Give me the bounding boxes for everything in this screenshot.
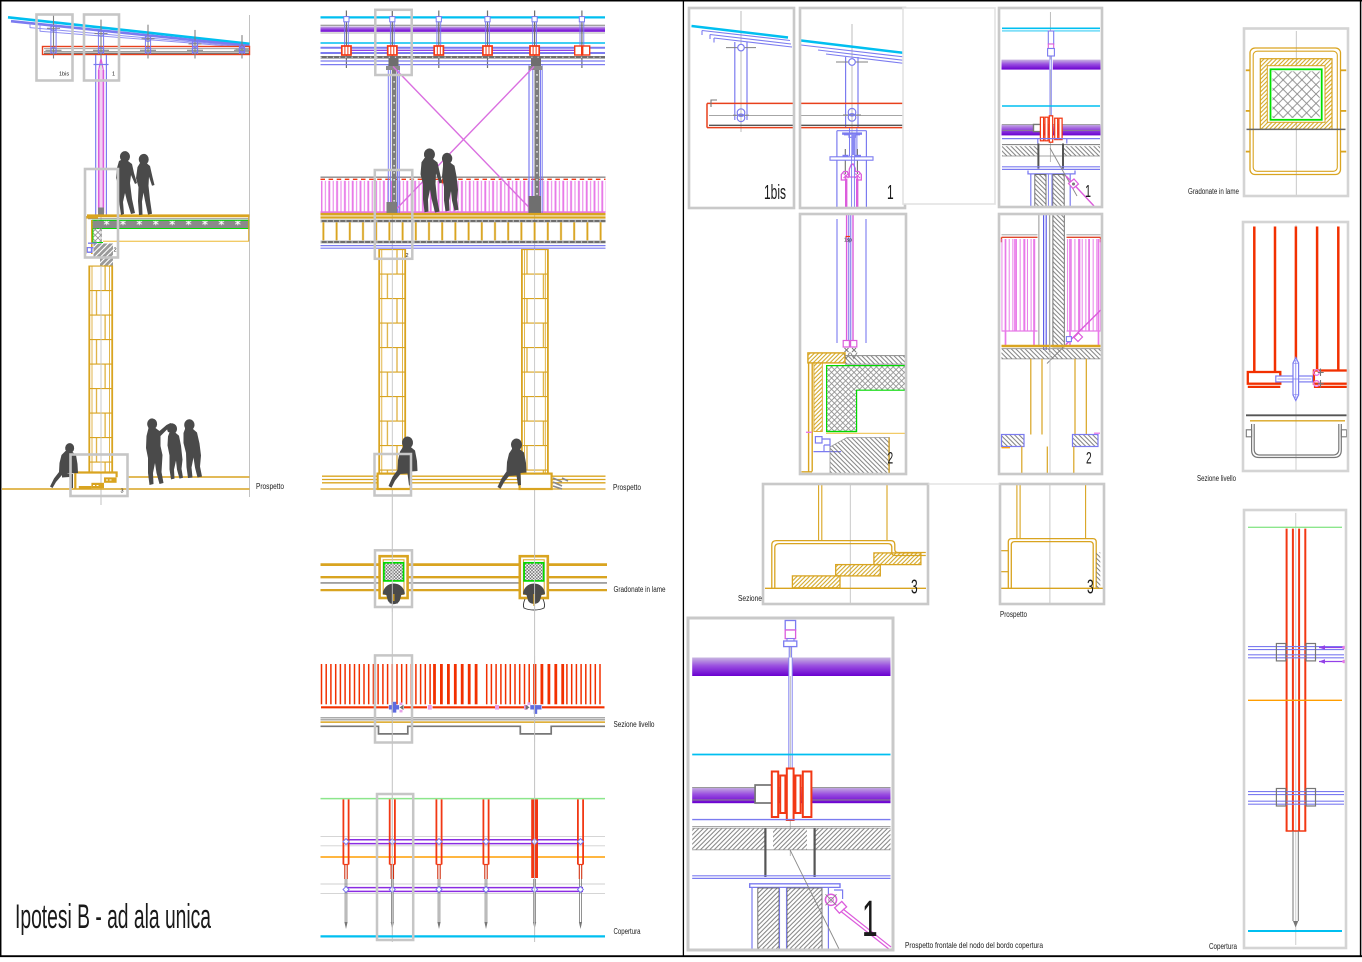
svg-text:Copertura: Copertura [1209,942,1237,951]
svg-text:2: 2 [406,253,409,259]
svg-text:Prospetto: Prospetto [613,482,641,492]
svg-text:Gradonate in lame: Gradonate in lame [1188,187,1239,196]
svg-text:Copertura: Copertura [614,927,641,936]
svg-text:1: 1 [887,182,894,204]
svg-text:3: 3 [911,577,918,599]
svg-text:2: 2 [1086,448,1092,467]
svg-text:1: 1 [862,890,878,947]
svg-text:2: 2 [888,448,894,467]
svg-text:Sezione livello: Sezione livello [1197,474,1236,483]
svg-text:3: 3 [121,489,124,495]
svg-text:Prospetto frontale del nodo de: Prospetto frontale del nodo del bordo co… [905,940,1043,950]
svg-text:1: 1 [1085,182,1091,201]
svg-text:Gradonate in lame: Gradonate in lame [614,585,666,594]
svg-text:Ipotesi B - ad ala unica: Ipotesi B - ad ala unica [15,898,211,936]
svg-text:1sp: 1sp [844,238,852,244]
svg-text:3: 3 [1087,577,1094,599]
svg-text:1bis: 1bis [764,182,786,204]
svg-text:2: 2 [114,248,117,254]
svg-text:1bis: 1bis [59,72,69,78]
svg-text:Prospetto: Prospetto [1000,609,1027,619]
svg-text:Prospetto: Prospetto [256,481,284,491]
svg-text:Sezione livello: Sezione livello [614,720,655,729]
svg-text:1: 1 [112,72,115,78]
svg-text:Sezione: Sezione [738,594,762,603]
